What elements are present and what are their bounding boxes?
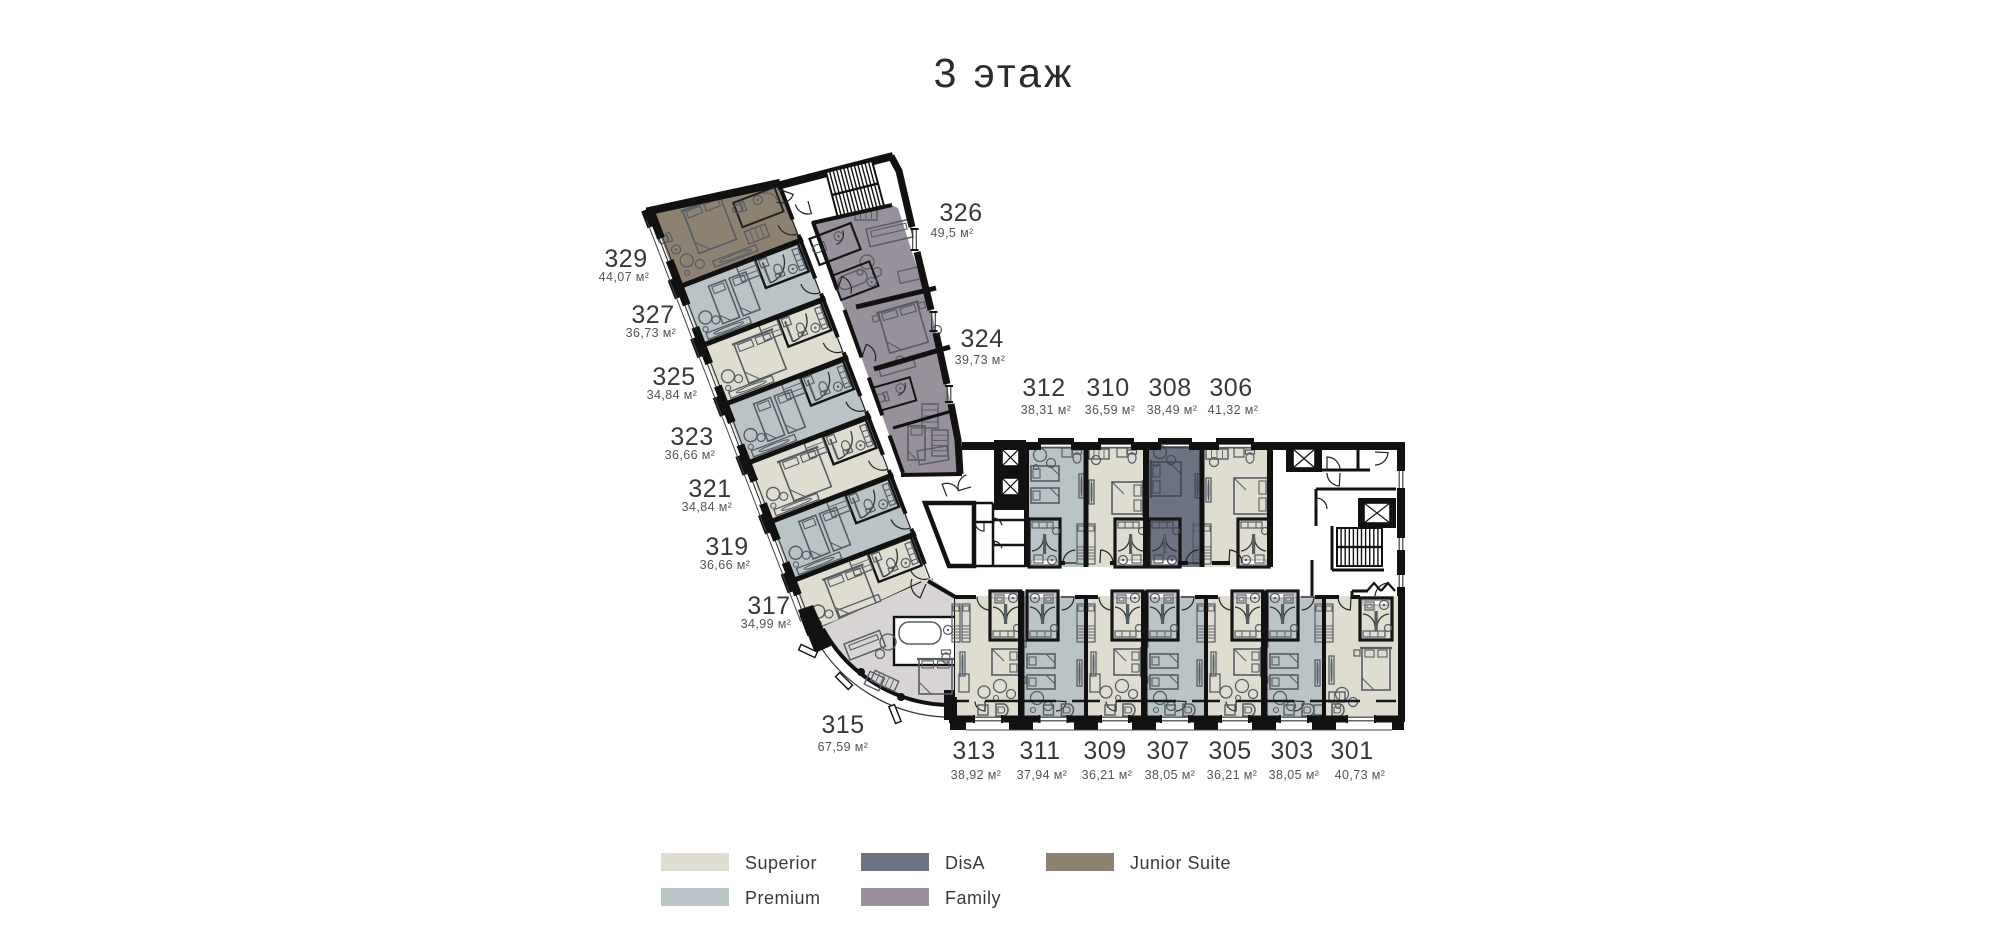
svg-text:315: 315 (821, 711, 864, 739)
svg-text:49,5 м²: 49,5 м² (930, 226, 973, 240)
svg-text:303: 303 (1270, 737, 1313, 765)
svg-text:38,31 м²: 38,31 м² (1021, 403, 1072, 417)
svg-text:38,05 м²: 38,05 м² (1145, 768, 1196, 782)
svg-text:313: 313 (952, 737, 995, 765)
svg-text:40,73 м²: 40,73 м² (1335, 768, 1386, 782)
svg-text:329: 329 (604, 245, 647, 273)
svg-text:34,84 м²: 34,84 м² (682, 500, 733, 514)
svg-text:DisA: DisA (945, 853, 985, 873)
svg-text:317: 317 (747, 592, 790, 620)
svg-text:36,73 м²: 36,73 м² (626, 326, 677, 340)
svg-text:36,21 м²: 36,21 м² (1082, 768, 1133, 782)
svg-text:312: 312 (1022, 374, 1065, 402)
svg-text:Family: Family (945, 888, 1001, 908)
svg-text:311: 311 (1019, 737, 1060, 765)
svg-text:Superior: Superior (745, 853, 817, 873)
svg-text:321: 321 (688, 475, 731, 503)
svg-text:323: 323 (670, 423, 713, 451)
svg-text:36,59 м²: 36,59 м² (1085, 403, 1136, 417)
svg-text:3 этаж: 3 этаж (934, 50, 1075, 96)
svg-text:306: 306 (1209, 374, 1252, 402)
svg-text:67,59 м²: 67,59 м² (818, 740, 869, 754)
svg-text:41,32 м²: 41,32 м² (1208, 403, 1259, 417)
svg-text:Junior Suite: Junior Suite (1130, 853, 1231, 873)
svg-text:34,99 м²: 34,99 м² (741, 617, 792, 631)
svg-text:319: 319 (705, 533, 748, 561)
svg-text:301: 301 (1330, 737, 1373, 765)
svg-text:327: 327 (631, 301, 674, 329)
svg-text:38,92 м²: 38,92 м² (951, 768, 1002, 782)
svg-text:44,07 м²: 44,07 м² (599, 270, 650, 284)
svg-text:308: 308 (1148, 374, 1191, 402)
svg-text:305: 305 (1208, 737, 1251, 765)
svg-text:36,66 м²: 36,66 м² (700, 558, 751, 572)
svg-text:38,05 м²: 38,05 м² (1269, 768, 1320, 782)
svg-text:39,73 м²: 39,73 м² (955, 353, 1006, 367)
svg-text:324: 324 (960, 325, 1003, 353)
svg-text:309: 309 (1083, 737, 1126, 765)
svg-text:326: 326 (939, 199, 982, 227)
svg-text:310: 310 (1086, 374, 1129, 402)
svg-text:36,66 м²: 36,66 м² (665, 448, 716, 462)
svg-text:37,94 м²: 37,94 м² (1017, 768, 1068, 782)
svg-text:Premium: Premium (745, 888, 821, 908)
svg-text:307: 307 (1146, 737, 1189, 765)
svg-text:36,21 м²: 36,21 м² (1207, 768, 1258, 782)
svg-text:38,49 м²: 38,49 м² (1147, 403, 1198, 417)
svg-text:34,84 м²: 34,84 м² (647, 388, 698, 402)
svg-text:325: 325 (652, 363, 695, 391)
